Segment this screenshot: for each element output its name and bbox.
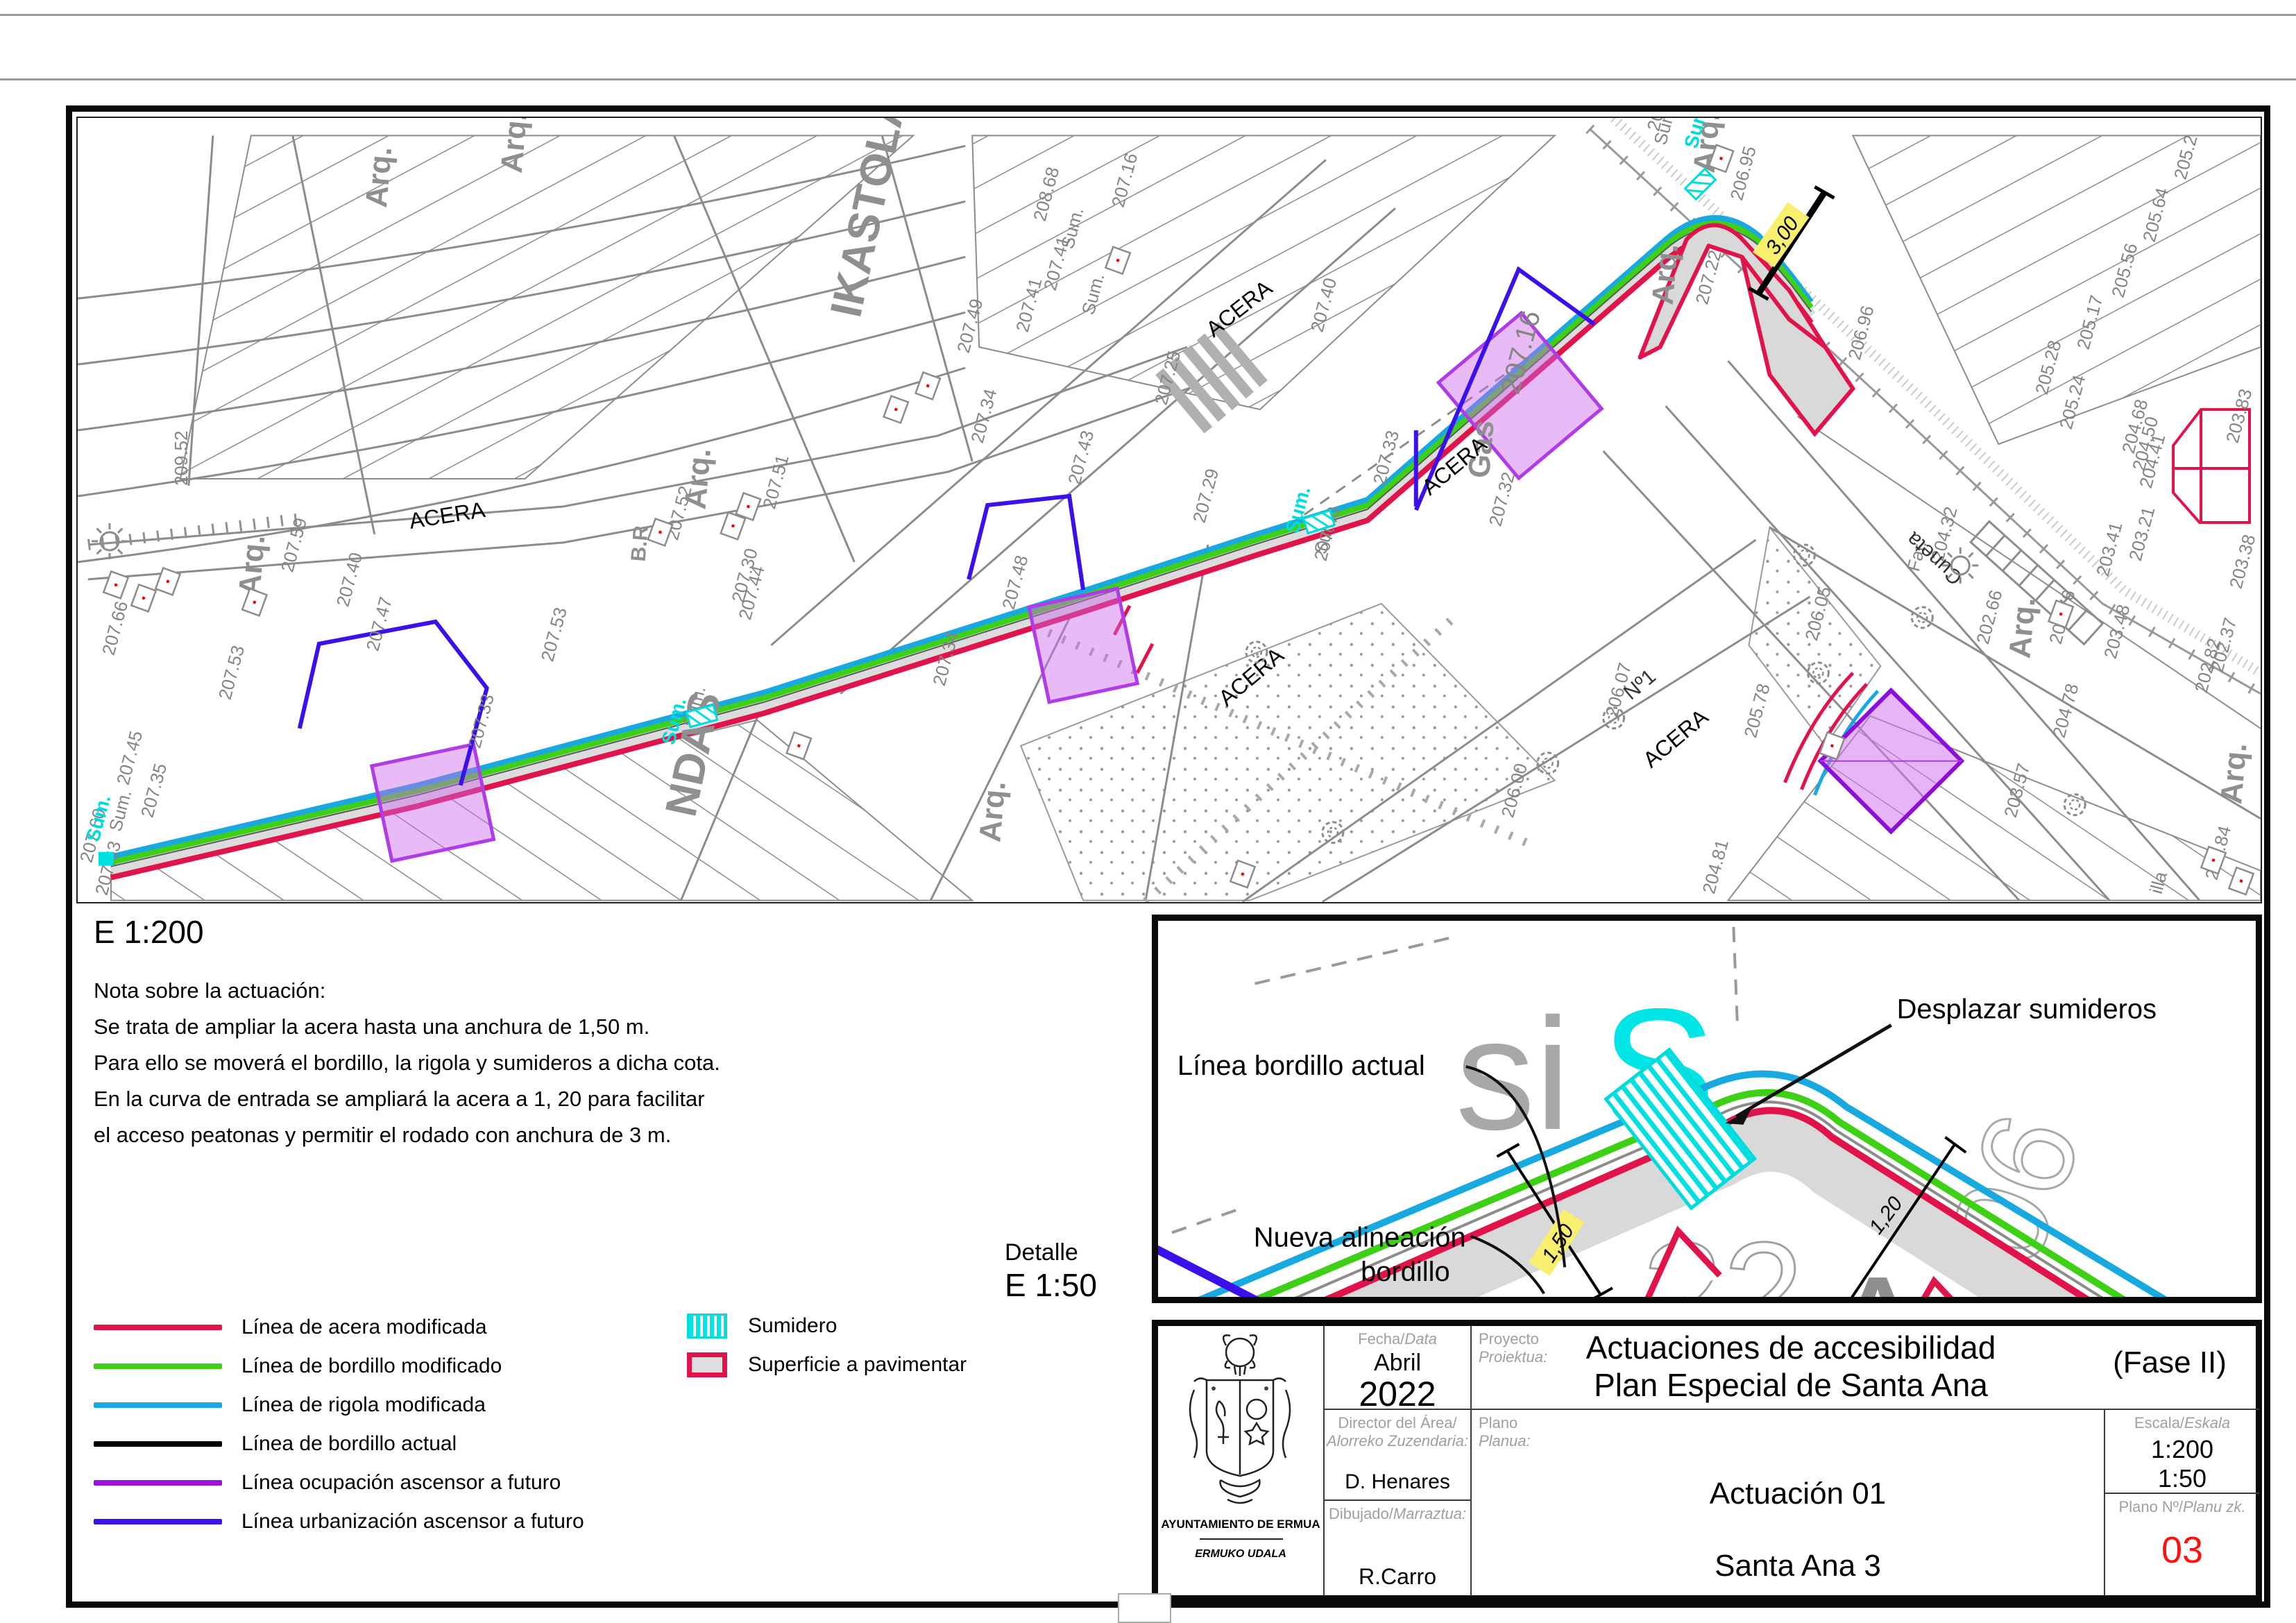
label-desplazar-sumideros: Desplazar sumideros (1897, 994, 2157, 1024)
legend-row: Línea de rigola modificada (94, 1391, 486, 1419)
map-light-symbol (92, 523, 128, 559)
note-block: Nota sobre la actuación: Se trata de amp… (94, 973, 720, 1153)
legend-line-swatch (94, 1480, 222, 1486)
legend-line-swatch (94, 1519, 222, 1524)
sumidero-swatch (687, 1314, 727, 1339)
detail-caption: Detalle E 1:50 (1005, 1239, 1097, 1304)
detail-drawing: si S 22 06 A 1,50 1,20 (1158, 921, 2256, 1297)
main-scale-label: E 1:200 (94, 913, 204, 951)
map-elevation-label: 204.81 (1698, 838, 1733, 896)
page-top-rule (0, 14, 2296, 16)
map-elevation-label: 207.33 (464, 692, 498, 750)
legend-row: Línea de bordillo actual (94, 1430, 457, 1458)
plano-number: 03 (2105, 1529, 2259, 1572)
map-acera-label: ACERA (407, 497, 487, 534)
project-fase: (Fase II) (2090, 1345, 2250, 1380)
legend-label: Línea de bordillo actual (241, 1432, 457, 1456)
map-elevation-label: 207.45 (112, 729, 147, 787)
legend-line-swatch (94, 1441, 222, 1447)
map-arq-label: Arq. (359, 145, 398, 209)
fecha-month: Abril (1325, 1350, 1470, 1377)
legend-row: Línea de bordillo modificado (94, 1352, 502, 1380)
map-elevation-label: 207.35 (137, 761, 171, 819)
legend-label: Línea urbanización ascensor a futuro (241, 1510, 584, 1533)
label-nueva-alineacion-1: Nueva alineación (1254, 1222, 1466, 1252)
map-elevation-label: 203.41 (2092, 520, 2127, 578)
plano-line1: Actuación 01 (1555, 1477, 2041, 1511)
map-drawing: 3,00 209.52207.59207.40207.47207.66207.5… (78, 118, 2261, 902)
legend-label: Línea de bordillo modificado (241, 1354, 502, 1378)
map-elevation-label: 207.40 (332, 550, 367, 609)
map-arq-label: Arq. (973, 780, 1012, 844)
note-line: Se trata de ampliar la acera hasta una a… (94, 1009, 720, 1045)
map-arq-label: Arq. (232, 534, 271, 597)
map-light-symbol (1942, 547, 1978, 584)
plano-cell: PlanoPlanua: Actuación 01 Santa Ana 3 (1472, 1410, 2105, 1595)
map-elevation-label: 203.21 (2125, 504, 2159, 563)
map-elevation-label: 207.66 (98, 599, 133, 657)
map-arq-marker (155, 568, 180, 595)
map-acera-label: ACERA (1638, 704, 1713, 772)
map-arq-marker (884, 396, 908, 423)
map-arq-label: Arq. (1646, 242, 1685, 306)
title-block: AYUNTAMIENTO DE ERMUA ERMUKO UDALA Fecha… (1152, 1320, 2262, 1601)
map-elevation-label: 202.66 (1972, 588, 2007, 646)
dibujado-name: R.Carro (1325, 1564, 1470, 1590)
legend-line-swatch (94, 1402, 222, 1408)
director-cell: Director del Área/Alorreko Zuzendaria: D… (1325, 1410, 1472, 1501)
label-linea-bordillo-actual: Línea bordillo actual (1177, 1051, 1425, 1081)
map-elevation-label: 203.48 (2100, 602, 2134, 661)
map-arq-marker (103, 571, 128, 598)
legend-label: Sumidero (748, 1314, 837, 1338)
page-second-rule (0, 78, 2296, 80)
main-plan-map[interactable]: 3,00 209.52207.59207.40207.47207.66207.5… (76, 117, 2262, 903)
map-arq-marker (648, 519, 672, 546)
project-title-1: Actuaciones de accesibilidad (1527, 1329, 2055, 1366)
plano-line2: Santa Ana 3 (1555, 1549, 2041, 1583)
map-elevation-label: 207.43 (1064, 428, 1098, 486)
legend-row: Línea urbanización ascensor a futuro (94, 1508, 584, 1536)
map-elevation-label: 207.53 (214, 643, 249, 702)
map-arq-label: B.R (627, 525, 653, 563)
fecha-year: 2022 (1325, 1374, 1470, 1414)
label-nueva-alineacion-2: bordillo (1361, 1257, 1450, 1287)
note-line: En la curva de entrada se ampliará la ac… (94, 1081, 720, 1117)
map-sumidero-mark (99, 852, 114, 866)
map-elevation-label: 207.48 (998, 553, 1032, 611)
map-arq-label: Arq. (2214, 742, 2253, 806)
logo-cell: AYUNTAMIENTO DE ERMUA ERMUKO UDALA (1158, 1326, 1325, 1595)
map-arq-label: Arq. (679, 447, 717, 511)
project-title-2: Plan Especial de Santa Ana (1527, 1366, 2055, 1404)
plano-num-cell: Plano Nº/Planu zk. 03 (2105, 1494, 2259, 1595)
detail-caption-label: Detalle (1005, 1239, 1097, 1266)
map-tree-symbol (1538, 753, 1558, 774)
pavimentar-swatch (687, 1352, 727, 1377)
detail-caption-scale: E 1:50 (1005, 1266, 1097, 1304)
org-name-eu: ERMUKO UDALA (1158, 1548, 1323, 1561)
map-elevation-label: 207.47 (362, 595, 397, 653)
legend-label: Línea de rigola modificada (241, 1393, 486, 1417)
map-arq-label: Arq. (2002, 596, 2041, 660)
map-elevation-label: 207.53 (536, 605, 571, 663)
legend-label: Línea de acera modificada (241, 1316, 487, 1339)
ermua-coat-of-arms (1158, 1326, 1322, 1513)
legend-label: Línea ocupación ascensor a futuro (241, 1471, 561, 1495)
map-elevation-label: Sum. (1649, 118, 1681, 147)
note-line: el acceso peatonas y permitir el rodado … (94, 1117, 720, 1153)
proyecto-cell: ProyectoProiektua: Actuaciones de accesi… (1472, 1326, 2259, 1410)
fecha-cell: Fecha/Data Abril 2022 (1325, 1326, 1472, 1410)
legend-swatch-row: Sumidero (687, 1314, 837, 1339)
map-arq-marker (787, 732, 811, 759)
director-name: D. Henares (1325, 1470, 1470, 1494)
legend-label: Superficie a pavimentar (748, 1353, 967, 1377)
org-name-es: AYUNTAMIENTO DE ERMUA (1158, 1518, 1323, 1531)
partial-rect (1118, 1593, 1171, 1623)
map-arq-marker (916, 373, 940, 400)
escala-2: 1:50 (2105, 1464, 2259, 1493)
legend-line-swatch (94, 1325, 222, 1330)
escala-1: 1:200 (2105, 1435, 2259, 1464)
legend-line-swatch (94, 1363, 222, 1369)
legend-swatch-row: Superficie a pavimentar (687, 1352, 967, 1377)
dibujado-cell: Dibujado/Marraztua: R.Carro (1325, 1501, 1472, 1595)
map-elevation-label: 205.78 (1740, 681, 1774, 740)
map-elevation-label: 207.29 (1189, 466, 1223, 525)
legend-row: Línea ocupación ascensor a futuro (94, 1469, 561, 1497)
map-arq-marker (131, 584, 155, 611)
note-line: Para ello se moverá el bordillo, la rigo… (94, 1045, 720, 1081)
ghost-si: si (1456, 985, 1571, 1163)
map-elevation-label: 209.52 (171, 431, 192, 486)
detail-inset[interactable]: si S 22 06 A 1,50 1,20 (1152, 915, 2262, 1303)
escala-cell: Escala/Eskala 1:200 1:50 (2105, 1410, 2259, 1494)
note-title: Nota sobre la actuación: (94, 973, 720, 1009)
legend-row: Línea de acera modificada (94, 1314, 487, 1341)
map-arq-label: Arq. (495, 118, 534, 174)
map-arq-marker (736, 493, 760, 520)
map-elevation-label: 203.38 (2225, 532, 2260, 590)
